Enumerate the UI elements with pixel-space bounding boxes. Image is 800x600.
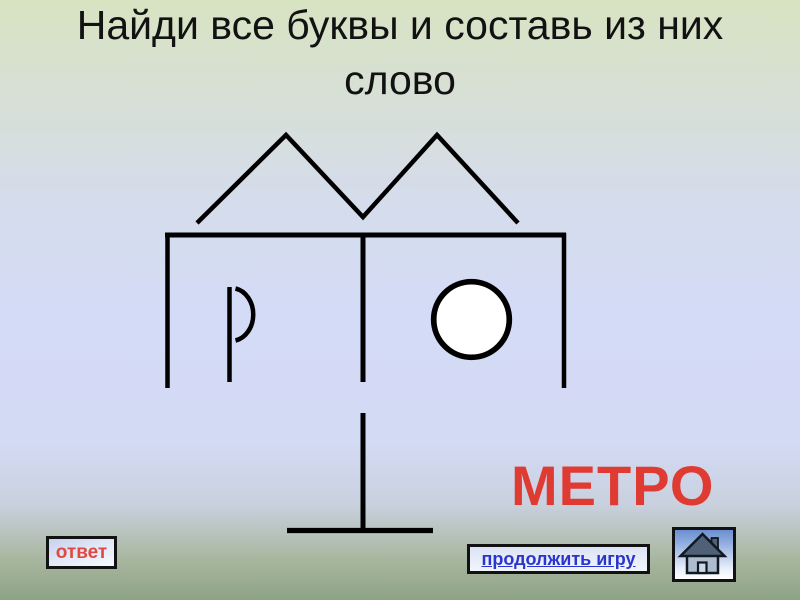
answer-button-label: ответ [56, 543, 108, 562]
continue-game-button-label: продолжить игру [481, 550, 635, 568]
page-title-line1: Найди все буквы и составь из них [0, 0, 800, 53]
home-button[interactable] [672, 527, 736, 582]
puzzle-slide: Найди все буквы и составь из них слово М… [0, 0, 800, 600]
letter-o-circle [434, 282, 510, 358]
house-door [698, 563, 707, 574]
answer-button[interactable]: ответ [46, 536, 117, 569]
zigzag-letter-m-line [197, 135, 518, 223]
page-title: Найди все буквы и составь из них слово [0, 0, 800, 108]
house-icon [675, 530, 733, 579]
letter-r-bowl [236, 289, 254, 341]
answer-word: МЕТРО [511, 458, 714, 514]
page-title-line2: слово [0, 53, 800, 108]
continue-game-button[interactable]: продолжить игру [467, 544, 650, 574]
